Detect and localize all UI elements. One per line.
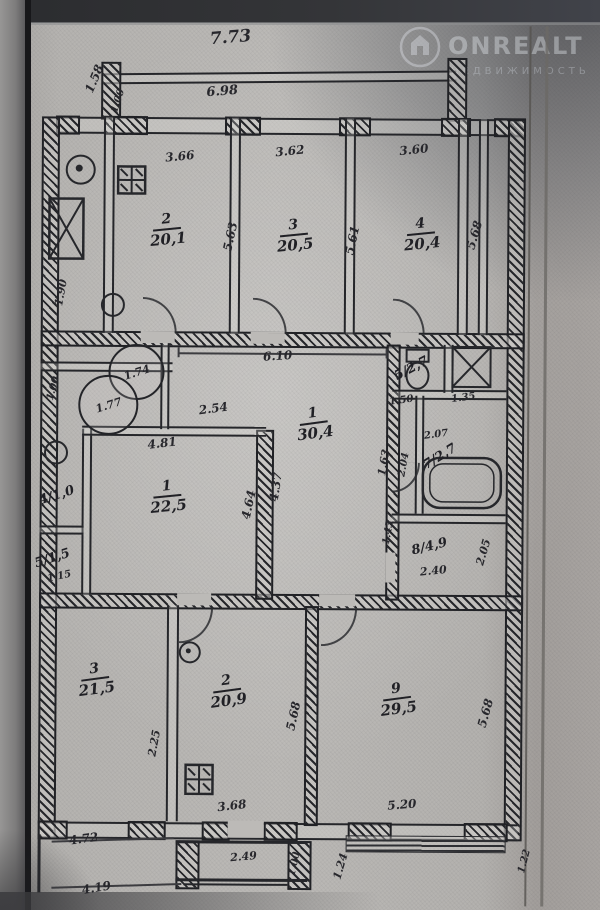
dimension-label: 5.68 bbox=[283, 700, 303, 732]
dimension-label: 5.20 bbox=[387, 796, 417, 812]
dimension-label: 1.00 bbox=[45, 375, 62, 401]
dimension-label: 1.50 bbox=[389, 394, 415, 408]
dimension-label: 1.00 bbox=[109, 88, 127, 115]
dimension-label: 2.54 bbox=[198, 400, 229, 418]
dimension-label: 4.81 bbox=[147, 435, 178, 452]
dimension-label: 4.37 bbox=[267, 471, 285, 502]
dimension-label: 2.40 bbox=[419, 563, 447, 579]
dimension-label: 1.22 bbox=[516, 848, 533, 874]
dimension-label: 1.24 bbox=[330, 852, 350, 881]
room-label-room-1-hall: 130,4 bbox=[294, 404, 335, 444]
room-label-room-5-wc: 5/2,7 bbox=[392, 354, 431, 384]
floor-plan: 220,1320,5420,4130,4122,55/2,77/2,78/4,9… bbox=[0, 0, 600, 910]
dimension-label: 2.49 bbox=[230, 849, 258, 864]
dimension-label: 1.15 bbox=[46, 569, 72, 585]
dimension-label: 2.25 bbox=[145, 729, 163, 758]
dimension-label: 2.07 bbox=[423, 428, 449, 442]
room-label-room-2-top: 220,1 bbox=[147, 211, 187, 250]
dimension-label: 4.72 bbox=[68, 830, 99, 848]
room-label-room-5-left: 5/1,5 bbox=[33, 546, 72, 571]
room-label-room-7-bath: 7/2,7 bbox=[421, 441, 460, 473]
dimension-label: 7.73 bbox=[209, 26, 252, 49]
circled-value: 1.77 bbox=[78, 375, 138, 435]
dimension-label: 3.62 bbox=[275, 143, 305, 160]
dimension-label: 5.68 bbox=[464, 219, 486, 251]
dimension-label: 1.00 bbox=[287, 851, 303, 877]
dimension-label: 5.63 bbox=[220, 221, 240, 253]
dimension-label: 2.05 bbox=[473, 537, 493, 566]
dimension-label: 1.63 bbox=[375, 448, 393, 477]
dimension-label: 1.90 bbox=[52, 278, 70, 307]
dimension-label: 1.43 bbox=[381, 520, 396, 546]
floor-plan-photo: ONREALT НЕДВИЖИМОСТЬ bbox=[0, 0, 600, 910]
dimension-label: 3.68 bbox=[217, 797, 248, 814]
dimension-label: 4.64 bbox=[239, 489, 259, 521]
dimension-label: 5.61 bbox=[342, 225, 362, 257]
dimension-label: 1.35 bbox=[451, 391, 477, 405]
dimension-label: 5.68 bbox=[475, 697, 496, 729]
plan-labels: 220,1320,5420,4130,4122,55/2,77/2,78/4,9… bbox=[0, 0, 600, 910]
dimension-label: 3.66 bbox=[165, 148, 195, 165]
dimension-label: 2.04 bbox=[396, 452, 411, 478]
room-label-room-4-wc-left: 4/1,0 bbox=[37, 483, 76, 508]
room-label-room-8-kitchen: 8/4,9 bbox=[410, 535, 449, 558]
dimension-label: 6.10 bbox=[263, 348, 293, 364]
room-label-room-3-top: 320,5 bbox=[274, 216, 314, 255]
room-label-room-2-bottom: 220,9 bbox=[207, 671, 248, 711]
dimension-label: 4.19 bbox=[81, 878, 112, 897]
room-label-room-4-top: 420,4 bbox=[401, 215, 441, 254]
dimension-label: 3.60 bbox=[399, 141, 429, 158]
dimension-label: 1.58 bbox=[82, 63, 106, 95]
dimension-label: 6.98 bbox=[206, 83, 239, 101]
room-label-room-1-left: 122,5 bbox=[148, 478, 188, 517]
room-label-room-3-bottom: 321,5 bbox=[75, 660, 116, 700]
room-label-room-9-bottom: 929,5 bbox=[377, 679, 418, 719]
